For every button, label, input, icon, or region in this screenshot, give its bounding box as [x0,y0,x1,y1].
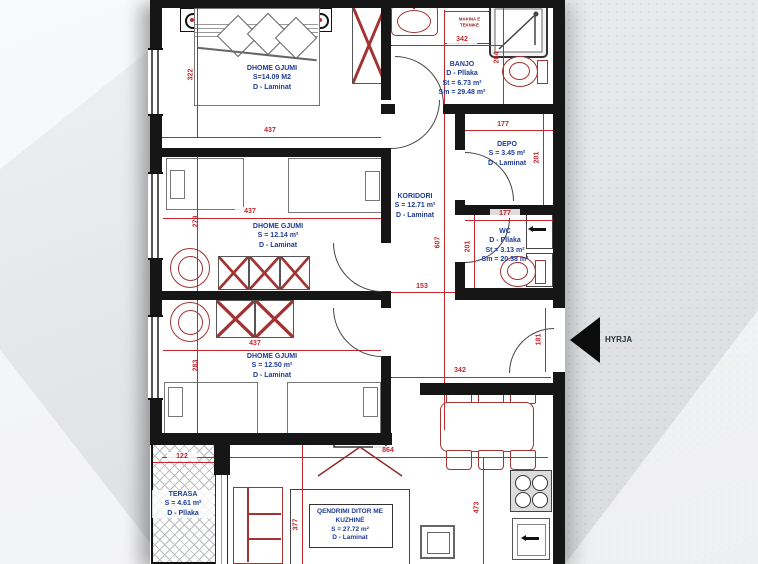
pillow [170,170,185,199]
wall-segment [443,104,565,114]
wall-segment [381,291,391,308]
dining-chair [478,450,504,470]
kitchen-sink [512,518,550,560]
washing-machine-label: MAKINA E [459,18,480,22]
wardrobe [216,300,255,338]
dimension-label: 437 [255,126,285,135]
stove [510,470,552,512]
single-bed [166,158,244,210]
wall-segment [162,291,381,300]
pillow [168,387,183,417]
dimension-label: 204 [493,47,502,69]
wardrobe [280,256,310,290]
dimension-label: 279 [192,211,201,233]
room-label-bedroom-2: DHOME GJUMIS = 12.14 m²D - Laminat [218,222,338,250]
wall-segment [553,372,565,564]
wall-segment [214,433,230,475]
washing-machine-label: TEKNIKE [460,24,479,28]
dimension-label: 607 [434,232,443,254]
window [148,315,163,400]
dimension-line [483,457,484,564]
dimension-label: 283 [192,355,201,377]
dimension-label: 437 [240,339,270,348]
single-bed [164,382,258,438]
wardrobe [218,256,249,290]
wall-segment [420,383,553,395]
wall-segment [150,400,162,433]
entrance-label: HYRJA [605,335,632,344]
dimension-label: 177 [490,209,520,218]
dimension-line [153,462,216,463]
room-label-storage: DEPOS = 3.45 m²D - Laminat [457,140,557,168]
room-label-bedroom-1: DHOME GJUMIS=14.09 M2D - Laminat [212,64,332,92]
room-label-corridor: KORIDORIS = 12.71 m²D - Laminat [355,192,475,220]
dimension-label: 322 [187,64,196,86]
wall-segment [150,0,565,8]
wall-segment [381,356,391,433]
wall-segment [150,433,392,445]
room-label-terrace: TERASAS = 4.61 m²D - Pllaka [152,490,214,518]
dimension-label: 177 [488,120,518,129]
sofa [233,487,283,564]
window [148,48,163,116]
dimension-label: 201 [533,147,542,169]
wall-segment [150,116,162,172]
dimension-label: 181 [535,329,544,351]
room-label-bedroom-3: DHOME GJUMIS = 12.50 m²D - Laminat [212,352,332,380]
armchair [170,302,210,342]
dimension-line [162,350,381,351]
dining-chair [510,450,536,470]
room-label-living-kitchen: QENDRIMI DITOR MEKUZHINËS = 27.72 m²D - … [310,508,390,543]
armchair [170,248,210,288]
dimension-line [162,137,381,138]
wall-segment [455,288,565,300]
floor-plan-graphic: MAKINA E TEKNIKE [0,0,758,564]
single-bed [287,382,381,438]
dining-table [440,402,534,452]
dimension-line [465,130,553,131]
dimension-label: 342 [447,35,477,44]
bathroom-sink [391,5,438,36]
window [148,172,163,260]
side-table [420,525,455,559]
room-label-bathroom: BANJOD - PllakaSt = 6.73 m²Sm = 29.48 m² [402,60,522,98]
dimension-line [391,377,551,378]
dimension-label: 377 [292,514,301,536]
dimension-line [391,292,455,293]
wall-segment [150,260,162,315]
dimension-label: 122 [167,452,197,461]
dimension-line [197,8,198,137]
wardrobe [249,256,280,290]
dining-chair [446,450,472,470]
dimension-line [302,445,303,564]
wall-segment [381,8,391,100]
dimension-label: 864 [373,446,403,455]
wardrobe [255,300,294,338]
dimension-label: 153 [407,282,437,291]
dimension-label: 437 [235,207,265,216]
dimension-label: 201 [464,236,473,258]
wall-segment [150,0,162,48]
wall-segment [162,148,381,157]
pillow [363,387,378,417]
dimension-line [391,45,503,46]
dimension-label: 342 [445,366,475,375]
dimension-label: 473 [473,497,482,519]
living-room-label-box: QENDRIMI DITOR MEKUZHINËS = 27.72 m²D - … [309,504,393,548]
entrance-arrow-icon [570,317,600,363]
